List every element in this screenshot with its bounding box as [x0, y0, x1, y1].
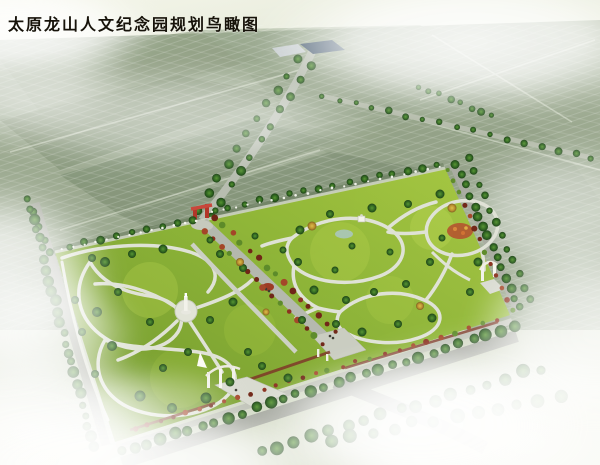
- aerial-rendering-canvas: 太原龙山人文纪念园规划鸟瞰图: [0, 0, 600, 465]
- aerial-rendering: [0, 0, 600, 465]
- haze-vignette: [0, 0, 600, 465]
- rendering-title: 太原龙山人文纪念园规划鸟瞰图: [8, 11, 428, 35]
